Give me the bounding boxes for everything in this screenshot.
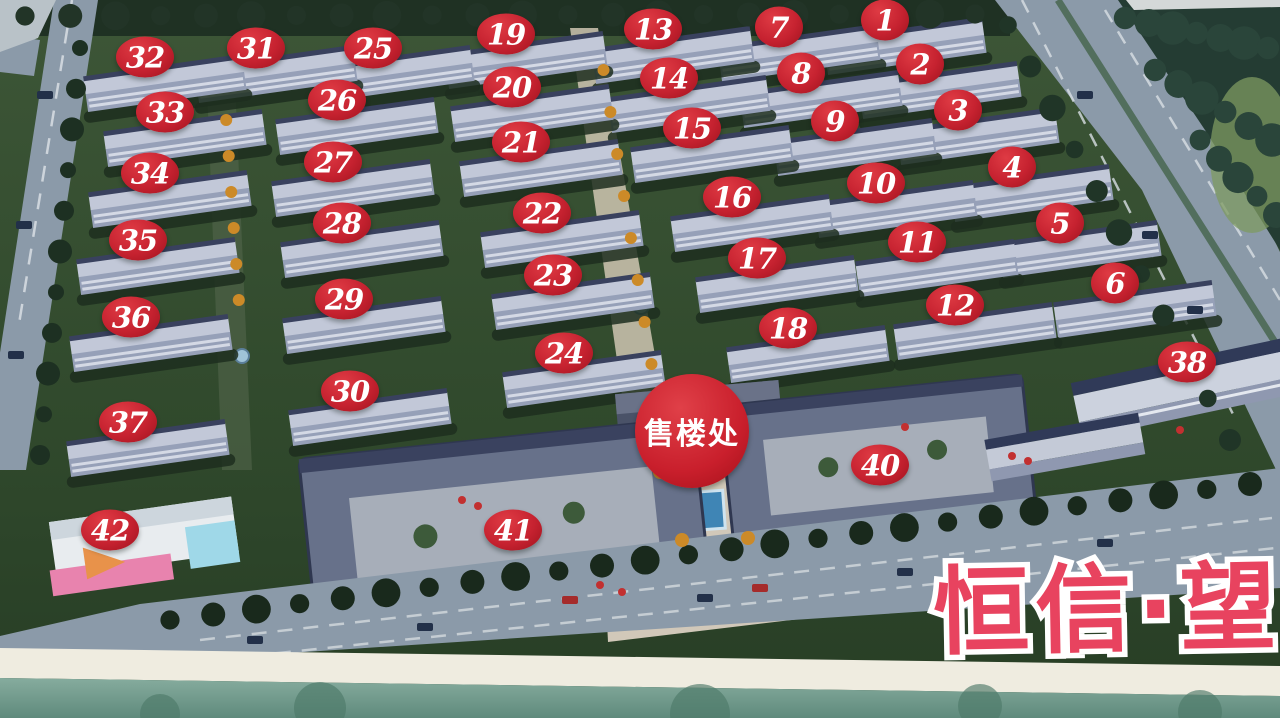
site-plan-photo: 1234567891011121314151617181920212223242… [0,0,1280,718]
building-badge-14: 14 [640,58,698,99]
building-badge-26: 26 [308,80,366,121]
building-badge-41: 41 [484,510,542,551]
building-badge-37: 37 [99,402,157,443]
building-badge-24: 24 [535,333,593,374]
sales-office-badge: 售楼处 [635,374,749,488]
building-badge-10: 10 [847,163,905,204]
building-badge-8: 8 [777,53,825,94]
building-badge-15: 15 [663,108,721,149]
building-badge-29: 29 [315,279,373,320]
building-badge-30: 30 [321,371,379,412]
building-badge-38: 38 [1158,342,1216,383]
building-badge-12: 12 [926,285,984,326]
building-badge-22: 22 [513,193,571,234]
building-badge-35: 35 [109,220,167,261]
building-badge-25: 25 [344,28,402,69]
building-badge-28: 28 [313,203,371,244]
building-badge-2: 2 [896,44,944,85]
building-badge-42: 42 [81,510,139,551]
building-badge-16: 16 [703,177,761,218]
building-badge-23: 23 [524,255,582,296]
building-badge-11: 11 [888,222,946,263]
building-badge-32: 32 [116,37,174,78]
building-badge-31: 31 [227,28,285,69]
building-badge-21: 21 [492,122,550,163]
building-badge-34: 34 [121,153,179,194]
building-badge-18: 18 [759,308,817,349]
building-badge-1: 1 [861,0,909,41]
building-badge-4: 4 [988,147,1036,188]
building-badge-40: 40 [851,445,909,486]
building-badge-19: 19 [477,14,535,55]
building-badge-3: 3 [934,90,982,131]
building-badge-5: 5 [1036,203,1084,244]
building-badge-27: 27 [304,142,362,183]
building-badge-9: 9 [811,101,859,142]
building-badge-20: 20 [483,67,541,108]
badges-layer: 1234567891011121314151617181920212223242… [0,0,1280,718]
building-badge-33: 33 [136,92,194,133]
building-badge-7: 7 [755,7,803,48]
building-badge-36: 36 [102,297,160,338]
building-badge-17: 17 [728,238,786,279]
building-badge-13: 13 [624,9,682,50]
building-badge-6: 6 [1091,263,1139,304]
